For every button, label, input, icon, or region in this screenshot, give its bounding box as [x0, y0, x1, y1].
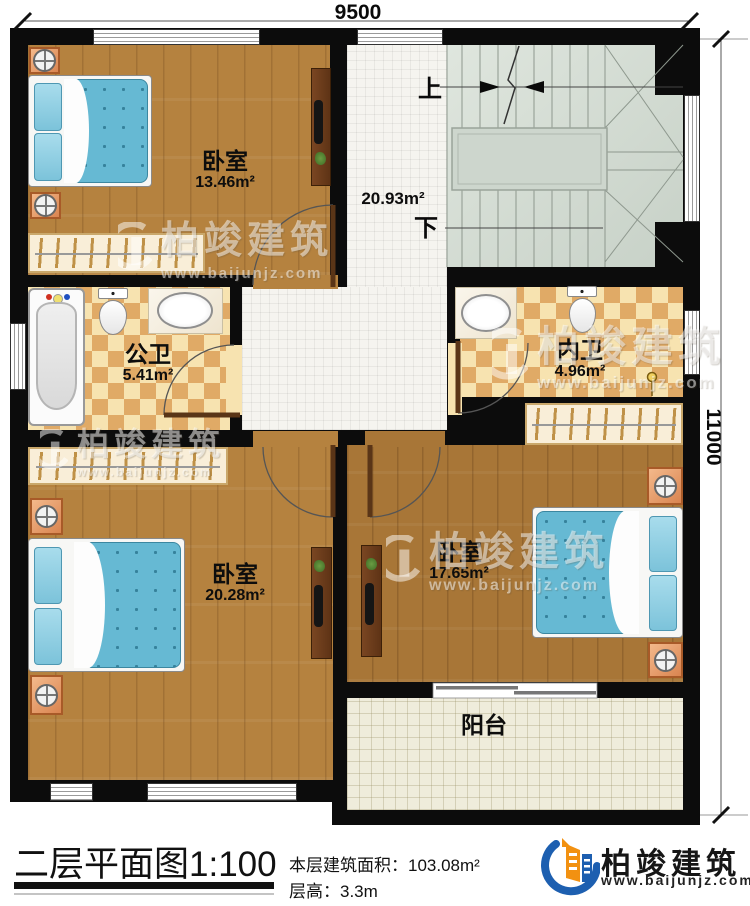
floor-balcony	[347, 698, 683, 810]
dimension-tick	[713, 807, 729, 823]
monitor-icon	[314, 585, 323, 627]
bed-top-left	[28, 75, 152, 187]
plant-icon	[366, 558, 377, 570]
closet-bottom-left-bedroom	[28, 447, 228, 485]
closet-bottom-right-bedroom	[525, 403, 683, 445]
toilet-private-bath	[567, 286, 597, 333]
nightstand	[29, 47, 60, 74]
dimension-width-label: 9500	[328, 1, 389, 25]
dimension-tick	[713, 31, 729, 47]
floor-area-text: 本层建筑面积：103.08m²	[289, 851, 480, 876]
window-bottom-left-2	[147, 783, 297, 801]
room-label-balcony: 阳台	[461, 712, 507, 738]
plan-scale: 1:100	[189, 845, 277, 884]
window-right-private-bath	[684, 310, 700, 375]
nightstand	[30, 192, 61, 219]
nightstand	[648, 642, 683, 678]
floor-plan-canvas: 9500 11000	[0, 0, 750, 906]
room-label-private-bath: 内卫 4.96m²	[555, 337, 606, 382]
bathtub	[28, 288, 85, 426]
dimension-tick	[15, 13, 31, 29]
brand-website: www.baijunjz.com	[601, 872, 750, 888]
floor-staircase	[447, 45, 683, 267]
bed-bottom-left	[28, 538, 185, 672]
title-underline	[14, 882, 274, 889]
nightstand	[647, 467, 683, 505]
window-bottom-left-1	[50, 783, 93, 801]
room-label-hallway: 20.93m²	[361, 189, 424, 209]
room-label-bedroom-top-left: 卧室 13.46m²	[195, 148, 255, 193]
room-label-bedroom-bottom-left: 卧室 20.28m²	[205, 561, 265, 606]
title-underline-shadow	[14, 893, 274, 895]
dimension-height-label: 11000	[701, 401, 725, 472]
bed-bottom-right	[532, 507, 683, 638]
window-top-bedroom	[93, 29, 260, 45]
nightstand	[30, 675, 63, 715]
window-left-bathtub	[10, 323, 26, 390]
sink-public-bath	[157, 292, 213, 329]
window-right-stairs	[684, 95, 700, 222]
toilet-public-bath	[98, 288, 128, 335]
wall-chunk-mid-right	[655, 222, 700, 267]
wall-chunk-top-right	[655, 45, 700, 95]
plant-icon	[315, 152, 326, 165]
room-label-public-bath: 公卫 5.41m²	[123, 341, 174, 386]
floor-hallway-horizontal	[242, 287, 447, 430]
stairs-down-label: 下	[414, 208, 438, 243]
sink-private-bath	[461, 294, 511, 332]
page-title: 二层平面图1:100	[14, 836, 277, 887]
monitor-icon	[365, 583, 374, 625]
nightstand	[30, 498, 63, 535]
brand-logo-icon	[540, 834, 600, 898]
plant-icon	[314, 560, 325, 572]
dimension-tick	[682, 13, 698, 29]
room-label-bedroom-bottom-right: 卧室 17.65m²	[429, 539, 489, 584]
floor-height-text: 层高：3.3m	[289, 877, 378, 902]
stairs-up-label: 上	[418, 69, 442, 104]
plan-title-text: 二层平面图	[14, 845, 189, 884]
monitor-icon	[314, 100, 323, 144]
window-top-hallway	[357, 29, 443, 45]
closet-top-left-bedroom	[28, 233, 205, 273]
